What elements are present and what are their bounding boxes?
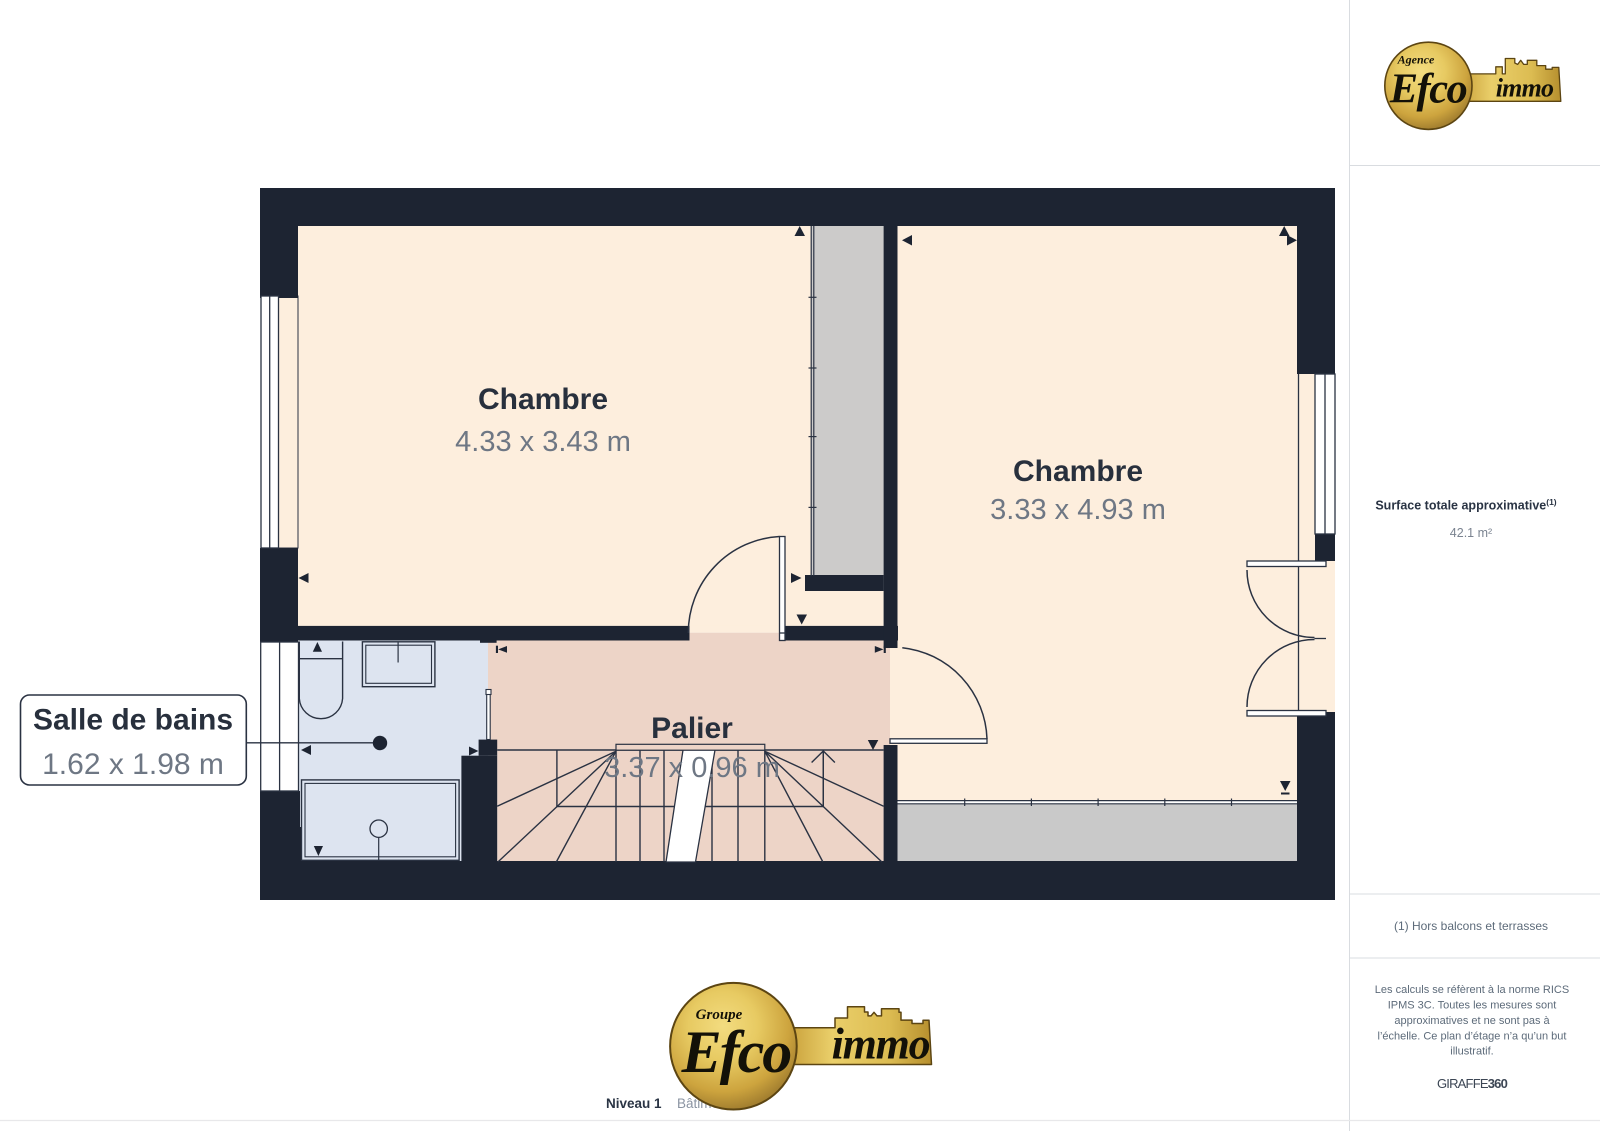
svg-text:l’échelle. Ce plan d’étage n’a: l’échelle. Ce plan d’étage n’a qu’un but xyxy=(1378,1030,1567,1042)
svg-text:Salle de bains: Salle de bains xyxy=(33,704,233,737)
svg-text:Surface totale approximative(1: Surface totale approximative(1) xyxy=(1375,497,1556,513)
svg-text:4.33 x 3.43 m: 4.33 x 3.43 m xyxy=(455,426,631,458)
svg-text:Chambre: Chambre xyxy=(478,383,608,416)
svg-text:Chambre: Chambre xyxy=(1013,455,1143,488)
svg-text:(1) Hors balcons et terrasses: (1) Hors balcons et terrasses xyxy=(1394,919,1548,933)
svg-text:Palier: Palier xyxy=(651,712,733,745)
svg-text:approximatives et ne sont pas: approximatives et ne sont pas à xyxy=(1394,1015,1550,1027)
svg-text:42.1 m²: 42.1 m² xyxy=(1450,526,1492,540)
svg-text:Les calculs se réfèrent à la n: Les calculs se réfèrent à la norme RICS xyxy=(1375,984,1569,996)
svg-text:1.62 x 1.98 m: 1.62 x 1.98 m xyxy=(42,748,224,781)
svg-text:Agence: Agence xyxy=(1397,53,1435,67)
svg-text:IPMS 3C. Toutes les mesures so: IPMS 3C. Toutes les mesures sont xyxy=(1388,999,1557,1011)
svg-text:immo: immo xyxy=(832,1020,930,1069)
svg-text:3.33 x 4.93 m: 3.33 x 4.93 m xyxy=(990,494,1166,526)
svg-text:Efco: Efco xyxy=(1389,66,1467,113)
svg-text:GIRAFFE360: GIRAFFE360 xyxy=(1437,1076,1508,1091)
svg-text:3.37 x 0.96 m: 3.37 x 0.96 m xyxy=(604,752,780,784)
svg-text:Efco: Efco xyxy=(681,1019,791,1085)
svg-text:illustratif.: illustratif. xyxy=(1450,1046,1493,1058)
svg-text:Niveau 1: Niveau 1 xyxy=(606,1096,662,1111)
svg-text:immo: immo xyxy=(1496,74,1554,103)
